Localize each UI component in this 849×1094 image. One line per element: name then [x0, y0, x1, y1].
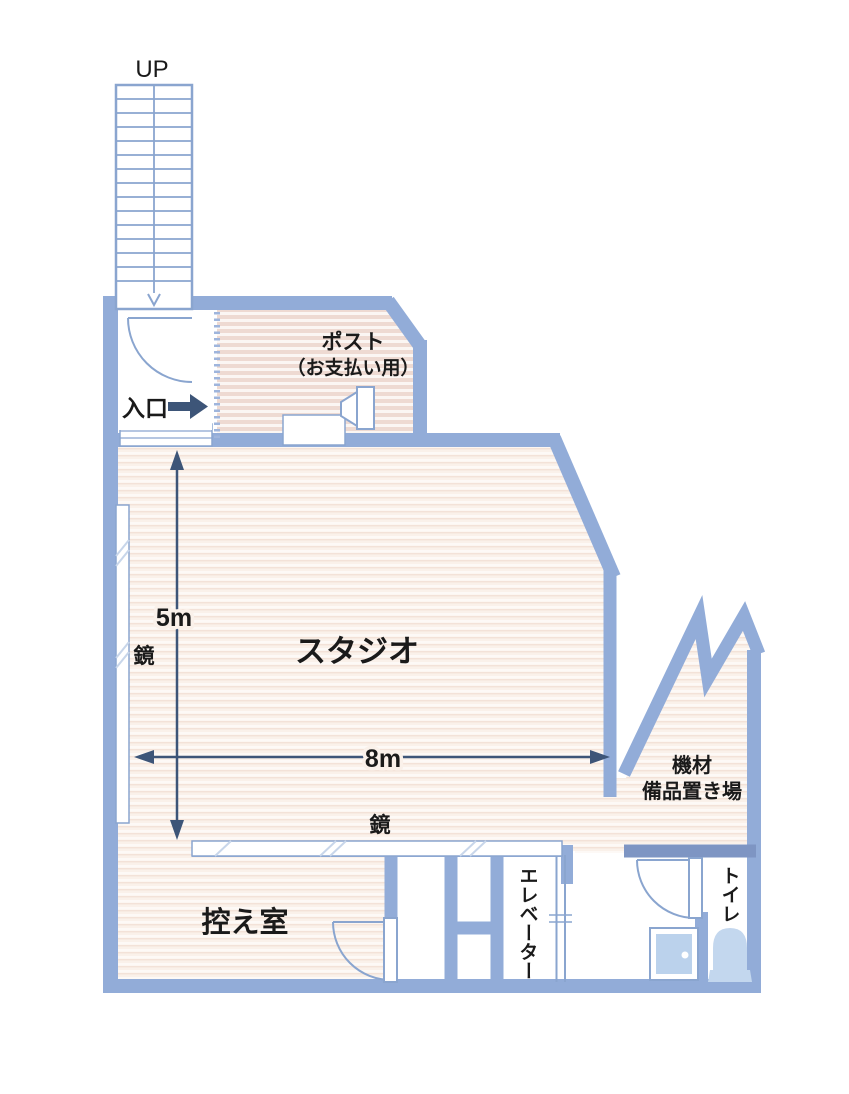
elevator-label: エレベーター	[517, 866, 539, 980]
mirror-bottom-label: 鏡	[370, 813, 391, 837]
dim-5m-label: 5m	[156, 604, 192, 632]
mirror-bottom	[192, 841, 562, 856]
toilet-label: トイレ	[719, 866, 740, 923]
up-label: UP	[135, 56, 168, 83]
equipment-label-line2: 備品置き場	[642, 779, 742, 803]
floor-plan: UP 入口 ポスト （お支払い用） スタジオ 鏡 鏡 5m 8m 機材 備品置き…	[0, 0, 849, 1089]
entrance-label: 入口	[122, 395, 168, 421]
post-label-line2: （お支払い用）	[286, 356, 419, 379]
waiting-room-label: 控え室	[201, 905, 288, 939]
door-panel-icon	[650, 928, 698, 980]
post-label-line1: ポスト	[322, 330, 385, 354]
dim-8m-label: 8m	[365, 745, 401, 773]
staircase	[116, 85, 192, 309]
floor-plan-page: UP 入口 ポスト （お支払い用） スタジオ 鏡 鏡 5m 8m 機材 備品置き…	[0, 0, 849, 1089]
equipment-label-line1: 機材	[672, 754, 712, 777]
studio-label: スタジオ	[295, 634, 419, 669]
post-counter	[283, 415, 345, 445]
mirror-left-label: 鏡	[134, 644, 155, 668]
